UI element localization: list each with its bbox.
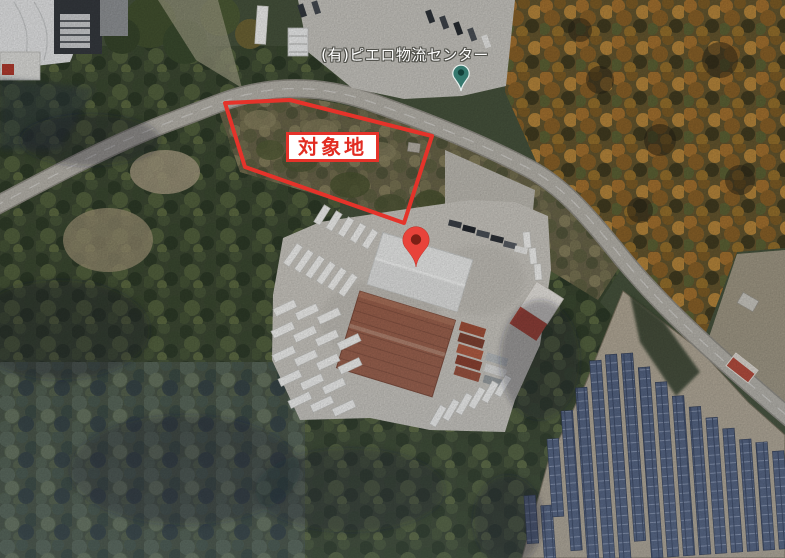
- satellite-map[interactable]: [0, 0, 785, 558]
- poi-label[interactable]: (有)ピエロ物流センター: [303, 44, 507, 65]
- target-area-label: 対象地: [286, 132, 379, 162]
- haze-overlay: [0, 0, 785, 558]
- map-viewport[interactable]: 対象地 (有)ピエロ物流センター: [0, 0, 785, 558]
- place-pin-icon[interactable]: [451, 63, 471, 92]
- red-map-pin-icon[interactable]: [398, 226, 434, 268]
